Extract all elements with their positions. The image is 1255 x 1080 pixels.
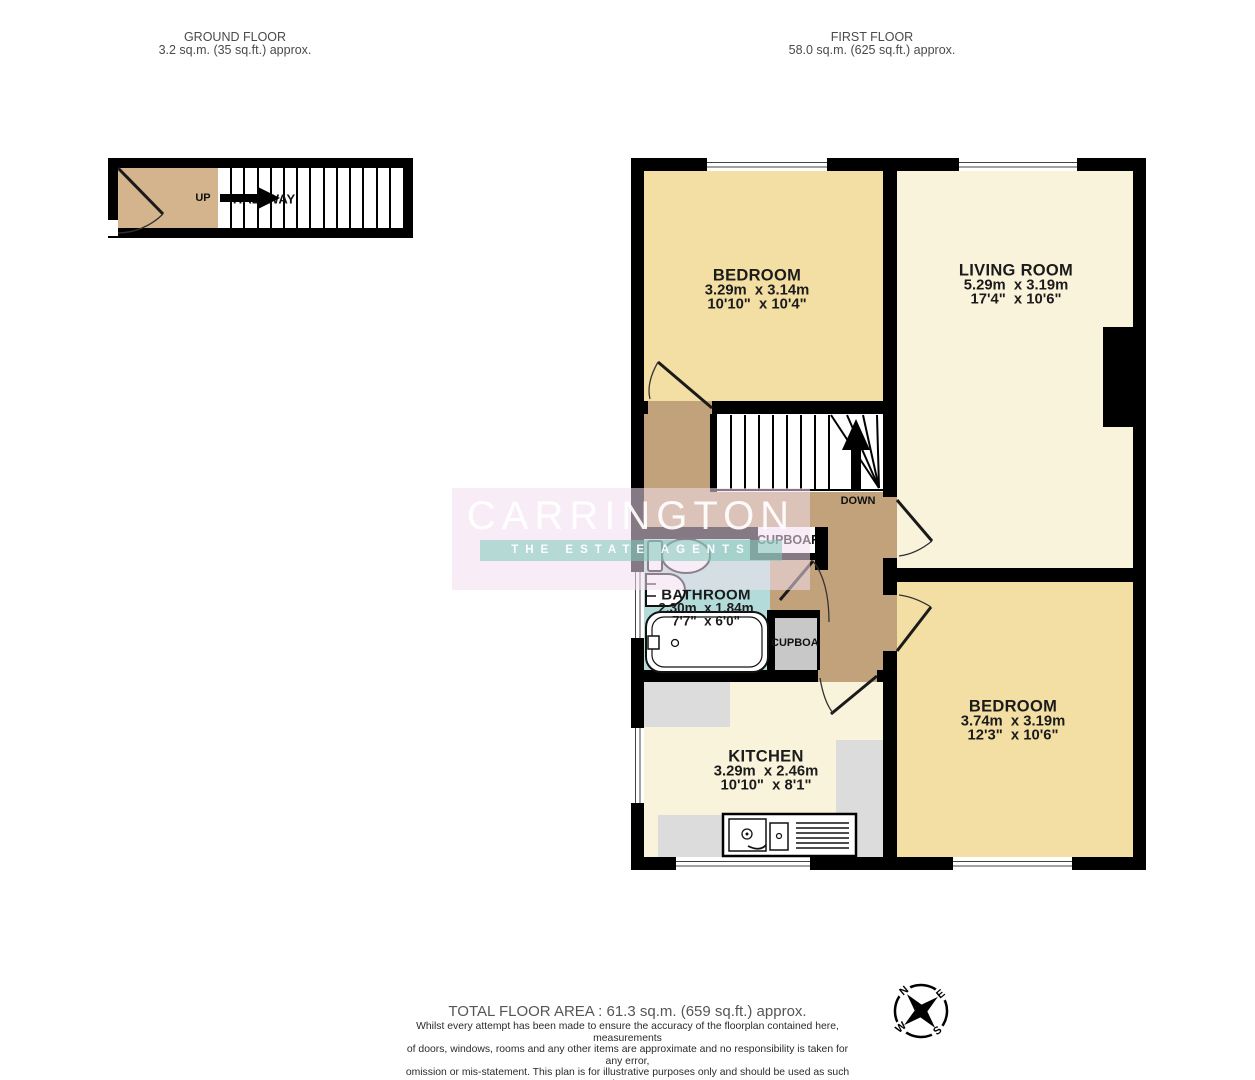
- disclaimer-line: omission or mis-statement. This plan is …: [400, 1067, 855, 1080]
- disclaimer: Whilst every attempt has been made to en…: [400, 1021, 855, 1080]
- window: [959, 158, 1077, 171]
- window: [953, 857, 1072, 870]
- down-label: DOWN: [841, 495, 876, 507]
- window: [631, 728, 644, 803]
- bathroom-label: BATHROOM 2.30m x 1.84m 7'7" x 6'0": [658, 589, 753, 628]
- bedroom-2-label: BEDROOM 3.74m x 3.19m 12'3" x 10'6": [961, 699, 1065, 743]
- kitchen-label: KITCHEN 3.29m x 2.46m 10'10" x 8'1": [714, 749, 818, 793]
- bedroom-1-label: BEDROOM 3.29m x 3.14m 10'10" x 10'4": [705, 268, 809, 312]
- first-floor-header: FIRST FLOOR 58.0 sq.m. (625 sq.ft.) appr…: [697, 31, 1047, 57]
- ground-floor-header: GROUND FLOOR 3.2 sq.m. (35 sq.ft.) appro…: [60, 31, 410, 57]
- cupboard-1-label: CUPBOARD: [757, 530, 815, 551]
- window: [676, 857, 810, 870]
- kitchen-sink: [723, 814, 856, 856]
- window: [631, 572, 644, 638]
- floorplan-canvas: N E S W: [0, 0, 1255, 1080]
- toilet: [648, 539, 710, 573]
- entrance-door-gap: [108, 220, 118, 236]
- disclaimer-line: of doors, windows, rooms and any other i…: [400, 1044, 855, 1067]
- cupboard-2-label: CUPBOARD: [771, 634, 820, 652]
- living-room-floor: [897, 171, 1133, 568]
- ground-floor-area: 3.2 sq.m. (35 sq.ft.) approx.: [60, 44, 410, 57]
- first-floor-area: 58.0 sq.m. (625 sq.ft.) approx.: [697, 44, 1047, 57]
- floorplan-page: N E S W GROUND FLOOR 3.2 sq.m. (35 sq.ft…: [0, 0, 1255, 1080]
- disclaimer-line: Whilst every attempt has been made to en…: [400, 1021, 855, 1044]
- living-room-label: LIVING ROOM 5.29m x 3.19m 17'4" x 10'6": [959, 263, 1073, 307]
- up-label: UP: [195, 192, 210, 204]
- total-floor-area: TOTAL FLOOR AREA : 61.3 sq.m. (659 sq.ft…: [0, 1003, 1255, 1020]
- window: [707, 158, 827, 171]
- hallway-label: HALLWAY: [233, 192, 295, 207]
- chimney-breast: [1103, 327, 1133, 427]
